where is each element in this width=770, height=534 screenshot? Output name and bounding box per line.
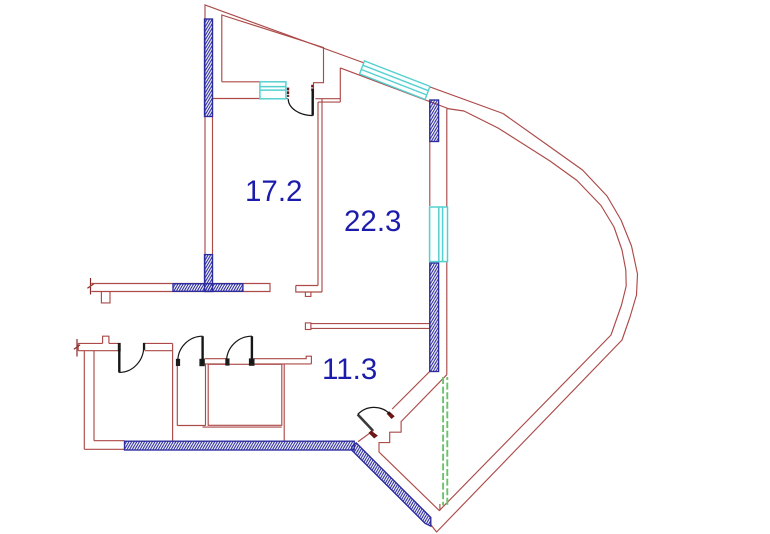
svg-text:17.2: 17.2	[245, 175, 302, 208]
svg-text:11.3: 11.3	[322, 353, 377, 386]
svg-text:22.3: 22.3	[344, 205, 401, 238]
